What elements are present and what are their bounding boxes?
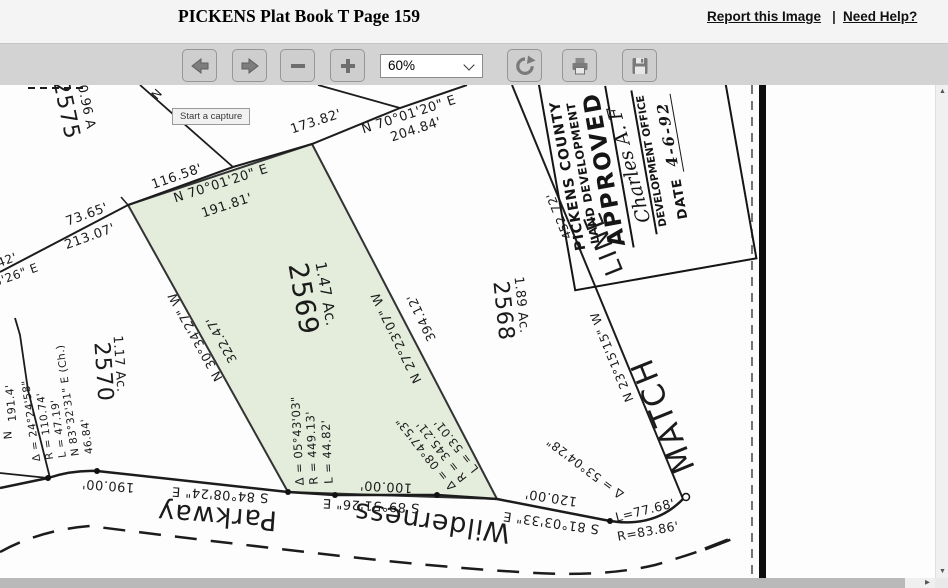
page-title: PICKENS Plat Book T Page 159 <box>178 6 420 27</box>
curve-end-node <box>683 494 690 501</box>
print-button[interactable] <box>562 49 597 82</box>
vertical-scrollbar[interactable]: ▲ ▼ <box>935 85 948 578</box>
horizontal-scrollbar-thumb[interactable] <box>0 578 905 588</box>
toolbar: 60% <box>0 43 948 87</box>
zoom-out-button[interactable] <box>280 49 315 82</box>
curve-data-1: Δ = 05°43'03" R = 449.13' L = 44.82' <box>288 394 336 486</box>
top-branch-line <box>318 85 400 108</box>
corner-tick <box>121 197 128 205</box>
link-separator: | <box>832 8 836 24</box>
scroll-right-icon[interactable]: ▶ <box>920 578 935 588</box>
zoom-level-select[interactable]: 60% <box>380 54 483 78</box>
scrollbar-corner <box>935 578 948 588</box>
road-edge-continuation <box>705 540 728 549</box>
plat-linework <box>0 85 935 578</box>
forward-button[interactable] <box>232 49 267 82</box>
sheet-edge-line <box>759 85 766 578</box>
scroll-up-icon[interactable]: ▲ <box>936 85 948 98</box>
left-arrow-icon <box>189 55 211 77</box>
back-button[interactable] <box>182 49 217 82</box>
right-arrow-icon <box>239 55 261 77</box>
floppy-disk-icon <box>629 55 651 77</box>
plat-viewer-app: { "header": { "title": "PICKENS Plat Boo… <box>0 0 948 588</box>
report-image-link[interactable]: Report this Image <box>707 9 821 24</box>
rotate-clockwise-icon <box>514 55 536 77</box>
save-button[interactable] <box>622 49 657 82</box>
minus-icon <box>287 55 309 77</box>
horizontal-scrollbar[interactable]: ▶ <box>0 578 935 588</box>
dist-label: 100.00' <box>359 477 412 495</box>
need-help-link[interactable]: Need Help? <box>843 9 917 24</box>
chevron-down-icon <box>463 59 474 70</box>
west-branch-line <box>0 473 48 478</box>
bearing-fragment: N <box>1 430 15 440</box>
plat-map-viewport[interactable]: 116.58' N 70°01'20" E 191.81' 173.82' N … <box>0 85 935 578</box>
header-bar: PICKENS Plat Book T Page 159 Report this… <box>0 0 948 44</box>
printer-icon <box>569 55 591 77</box>
rotate-button[interactable] <box>507 49 542 82</box>
zoom-in-button[interactable] <box>330 49 365 82</box>
scroll-down-icon[interactable]: ▼ <box>936 565 948 578</box>
stamp-date-label: DATE <box>669 177 691 221</box>
plus-icon <box>337 55 359 77</box>
capture-tooltip: Start a capture <box>172 108 250 125</box>
zoom-level-value: 60% <box>388 58 415 73</box>
